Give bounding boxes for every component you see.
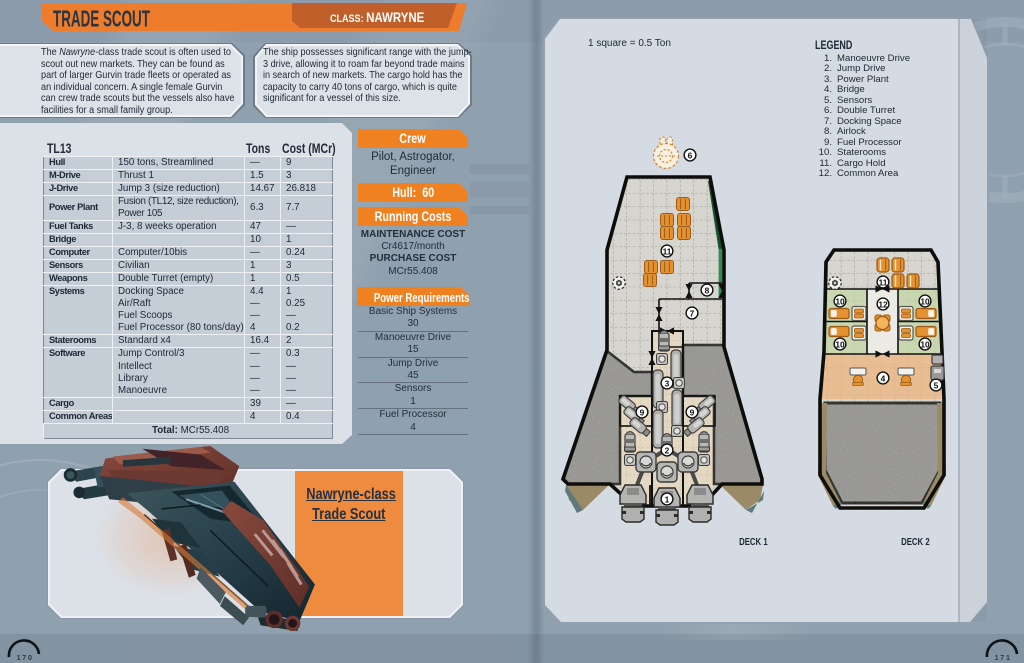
svg-text:10: 10 xyxy=(835,339,845,349)
svg-text:5: 5 xyxy=(934,380,939,390)
svg-text:170: 170 xyxy=(16,653,33,662)
svg-text:12: 12 xyxy=(878,299,888,309)
svg-text:7: 7 xyxy=(690,308,695,318)
svg-text:11: 11 xyxy=(663,246,672,256)
svg-text:10: 10 xyxy=(835,296,845,306)
svg-text:1: 1 xyxy=(665,494,670,504)
svg-text:10: 10 xyxy=(920,296,930,306)
svg-text:171: 171 xyxy=(994,653,1011,662)
svg-text:4: 4 xyxy=(881,373,886,383)
svg-text:9: 9 xyxy=(690,407,695,417)
svg-text:6: 6 xyxy=(688,150,693,160)
svg-text:3: 3 xyxy=(665,378,670,388)
svg-text:9: 9 xyxy=(640,407,645,417)
svg-text:11: 11 xyxy=(879,277,888,287)
svg-text:10: 10 xyxy=(920,339,930,349)
svg-text:2: 2 xyxy=(665,445,670,455)
svg-text:8: 8 xyxy=(705,285,710,295)
